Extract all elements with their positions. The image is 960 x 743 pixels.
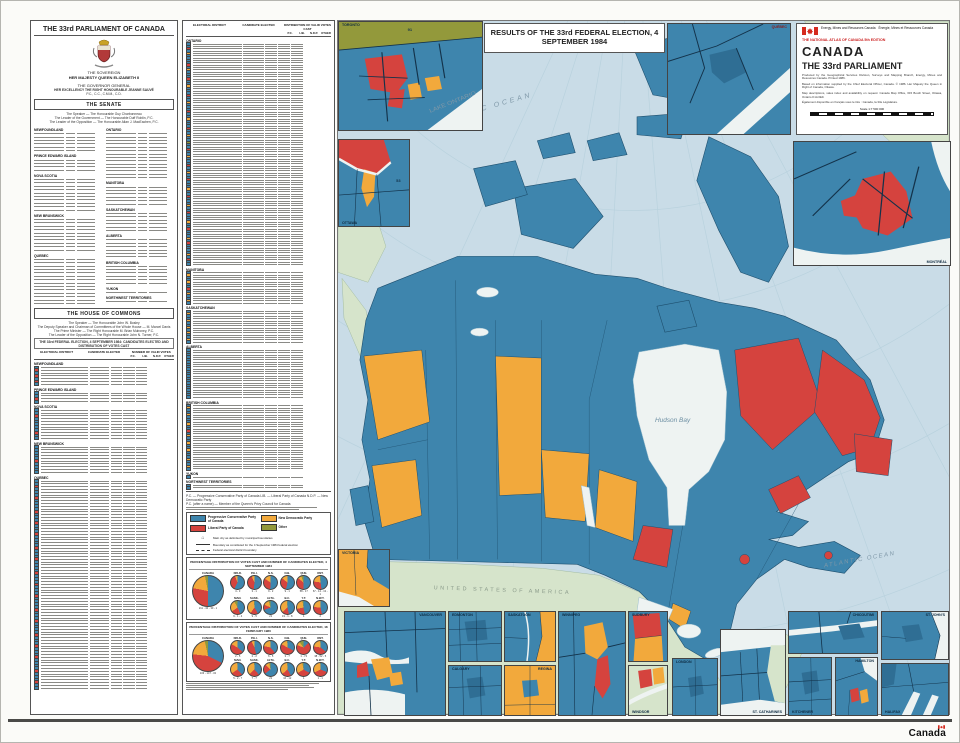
inset-vancouver: VANCOUVER (344, 611, 446, 716)
inset-sudbury: SUDBURY (628, 611, 668, 662)
inset-label: LONDON (675, 660, 693, 664)
panel-title: THE 33rd PARLIAMENT OF CANADA (34, 23, 174, 36)
pie-ns (263, 575, 278, 590)
pie-section-1980: PERCENTAGE DISTRIBUTION OF VOTES CAST AN… (186, 622, 331, 682)
inset-label: REGINA (537, 667, 553, 671)
col-candidate-b: CANDIDATE ELECTED (235, 23, 282, 31)
inset-winnipeg: WINNIPEG (558, 611, 626, 716)
inset-label: WINNIPEG (561, 613, 581, 617)
coat-of-arms (91, 39, 117, 69)
parliament-subtitle: THE 33rd PARLIAMENT (802, 61, 942, 71)
inset-label: VANCOUVER (418, 613, 443, 617)
pie-ns (263, 640, 278, 655)
inset-edmonton: EDMONTON (448, 611, 502, 662)
pie-ont (313, 575, 328, 590)
map-legend: Progressive Conservative Party of Canada… (186, 512, 331, 556)
inset-label: QUÉBEC (771, 25, 788, 29)
inset-saskatoon: SASKATOON (504, 611, 556, 662)
inset-kitchener: KITCHENER (788, 657, 832, 716)
source-notes (186, 683, 331, 690)
pie-man (230, 662, 245, 677)
legend-swatch-pc (190, 515, 206, 522)
sovereign-name: HER MAJESTY QUEEN ELIZABETH II (34, 75, 174, 80)
party-subcols-a: P.C.LIB.N.D.P.OTHER (34, 354, 174, 358)
canada-election-map: ARCTIC OCEAN Hudson Bay ATLANTIC OCEAN U… (337, 20, 950, 715)
credit-paragraph-2: Based on information supplied by the Chi… (802, 83, 942, 90)
inset-label: HAMILTON (854, 659, 875, 663)
inset-regina: REGINA (504, 665, 556, 716)
info-panel: Energy, Mines and Resources Canada Énerg… (796, 23, 948, 135)
bottom-rule (8, 719, 952, 722)
boundary-line-symbol (196, 544, 210, 545)
governor-postnominals: P.C., C.C., C.M.M., C.D. (34, 92, 174, 96)
inset-windsor: WINDSOR (628, 665, 668, 716)
pie-yt (296, 662, 311, 677)
wordmark-flag-icon (938, 725, 945, 729)
pie-bc (280, 662, 295, 677)
inset-toronto: LAKE ONTARIO TORONTO 91 (338, 21, 483, 131)
inset-label: TORONTO (341, 23, 361, 27)
map-sheet: THE 33rd PARLIAMENT OF CANADA THE SOVERE… (0, 0, 960, 743)
pie-bc (280, 600, 295, 615)
credit-paragraph-3: Map descriptions, sales index and availa… (802, 92, 942, 99)
pie-pei (247, 640, 262, 655)
country-title: CANADA (802, 44, 942, 59)
inset-label: VICTORIA (341, 551, 360, 555)
pie-nb (280, 640, 295, 655)
scale-bar: Scale 1:7 500 000 (802, 107, 942, 117)
pie-nwt (313, 662, 328, 677)
pie-title-1980: PERCENTAGE DISTRIBUTION OF VOTES CAST AN… (189, 625, 328, 635)
map-title-box: RESULTS OF THE 33rd FEDERAL ELECTION, 4 … (484, 23, 665, 53)
inset-label: CHICOUTIMI (852, 613, 875, 617)
inset-montreal: MONTRÉAL (793, 141, 951, 266)
pie-man (230, 600, 245, 615)
inset-st-johns: ST. JOHN'S (881, 611, 949, 660)
inset-label: OTTAWA (341, 221, 358, 225)
pie-ont (313, 640, 328, 655)
atlas-edition-line: THE NATIONAL ATLAS OF CANADA 5th EDITION (802, 38, 942, 42)
map-title: RESULTS OF THE 33rd FEDERAL ELECTION, 4 … (485, 29, 664, 46)
pie-yt (296, 600, 311, 615)
abbreviation-notes: P.C. — Progressive Conservative Party of… (186, 491, 331, 510)
districts-panel: ELECTORAL DISTRICT CANDIDATE ELECTED DIS… (182, 20, 335, 715)
inset-london: LONDON (672, 658, 718, 716)
commons-heading: THE HOUSE OF COMMONS (34, 308, 174, 319)
pie-nwt (313, 600, 328, 615)
inset-label: CALGARY (451, 667, 471, 671)
inset-quebec: QUÉBEC (667, 23, 791, 135)
city-symbol-icon: ⌂ (196, 535, 210, 541)
inset-ottawa: OTTAWA 53 (338, 139, 410, 227)
pie-sask (247, 600, 262, 615)
commons-intro: The Speaker — The Honourable John W. Bos… (34, 321, 174, 337)
canada-flag-icon (802, 27, 818, 35)
inset-label: MONTRÉAL (926, 260, 948, 264)
commons-table-title: THE 33rd FEDERAL ELECTION, 4 SEPTEMBER 1… (34, 338, 174, 349)
inset-label: SUDBURY (631, 613, 651, 617)
legend-swatch-ndp (261, 515, 277, 522)
inset-label: EDMONTON (451, 613, 474, 617)
inset-hamilton: HAMILTON (835, 657, 878, 716)
col-candidate: CANDIDATE ELECTED (81, 350, 126, 354)
pie-canada (192, 640, 224, 672)
district-number: 53 (396, 178, 400, 183)
inset-st-catharines: ST. CATHARINES (720, 629, 786, 716)
pie-title-1984: PERCENTAGE DISTRIBUTION OF VOTES CAST AN… (189, 560, 328, 570)
inset-label: ST. CATHARINES (752, 710, 783, 714)
inset-chicoutimi: CHICOUTIMI (788, 611, 878, 654)
pie-canada (192, 575, 224, 607)
inset-halifax: HALIFAX (881, 663, 949, 716)
pie-nb (280, 575, 295, 590)
pie-alta (263, 600, 278, 615)
inset-label: HALIFAX (884, 710, 901, 714)
parliament-panel: THE 33rd PARLIAMENT OF CANADA THE SOVERE… (30, 20, 178, 715)
inset-victoria: VICTORIA (338, 549, 390, 607)
pie-nfld (230, 575, 245, 590)
agency-fr: Énergie, Mines et Ressources Canada (879, 27, 934, 31)
pie-pei (247, 575, 262, 590)
senate-heading: THE SENATE (34, 99, 174, 110)
senate-table: NEWFOUNDLANDPRINCE EDWARD ISLANDNOVA SCO… (34, 126, 174, 305)
legend-swatch-other (261, 524, 277, 531)
pie-que (296, 575, 311, 590)
inset-label: WINDSOR (631, 710, 650, 714)
pie-sask (247, 662, 262, 677)
commons-table-header-a: ELECTORAL DISTRICT CANDIDATE ELECTED NUM… (34, 350, 174, 360)
pie-que (296, 640, 311, 655)
commons-table-header-b: ELECTORAL DISTRICT CANDIDATE ELECTED DIS… (186, 23, 331, 37)
credit-paragraph-4: Également disponible en français sous le… (802, 101, 942, 105)
col-district: ELECTORAL DISTRICT (34, 350, 79, 354)
inset-label: SASKATOON (507, 613, 532, 617)
col-district-b: ELECTORAL DISTRICT (186, 23, 233, 31)
col-dist-b: DISTRIBUTION OF VALID VOTES CAST (284, 23, 331, 31)
pie-alta (263, 662, 278, 677)
commons-rows-b: ONTARIOMANITOBASASKATCHEWANALBERTABRITIS… (186, 39, 331, 489)
pie-section-1984: PERCENTAGE DISTRIBUTION OF VOTES CAST AN… (186, 557, 331, 620)
commons-rows-a: NEWFOUNDLANDPRINCE EDWARD ISLANDNOVA SCO… (34, 362, 174, 689)
inset-label: KITCHENER (791, 710, 814, 714)
party-subcols-b: P.C.LIB.N.D.P.OTHER (186, 31, 331, 35)
agency-en: Energy, Mines and Resources Canada (821, 27, 876, 31)
inset-calgary: CALGARY (448, 665, 502, 716)
senate-intro: The Speaker — The Honourable Guy Charbon… (34, 112, 174, 124)
district-line-symbol (196, 550, 210, 551)
canada-wordmark: Canada (909, 728, 946, 739)
district-number: 91 (408, 27, 412, 32)
pie-nfld (230, 640, 245, 655)
credit-paragraph-1: Produced by the Geographical Services Di… (802, 74, 942, 81)
scale-label: Scale 1:7 500 000 (802, 107, 942, 111)
inset-label: ST. JOHN'S (925, 613, 946, 617)
legend-swatch-lib (190, 525, 206, 532)
hudson-bay-label: Hudson Bay (655, 417, 691, 424)
